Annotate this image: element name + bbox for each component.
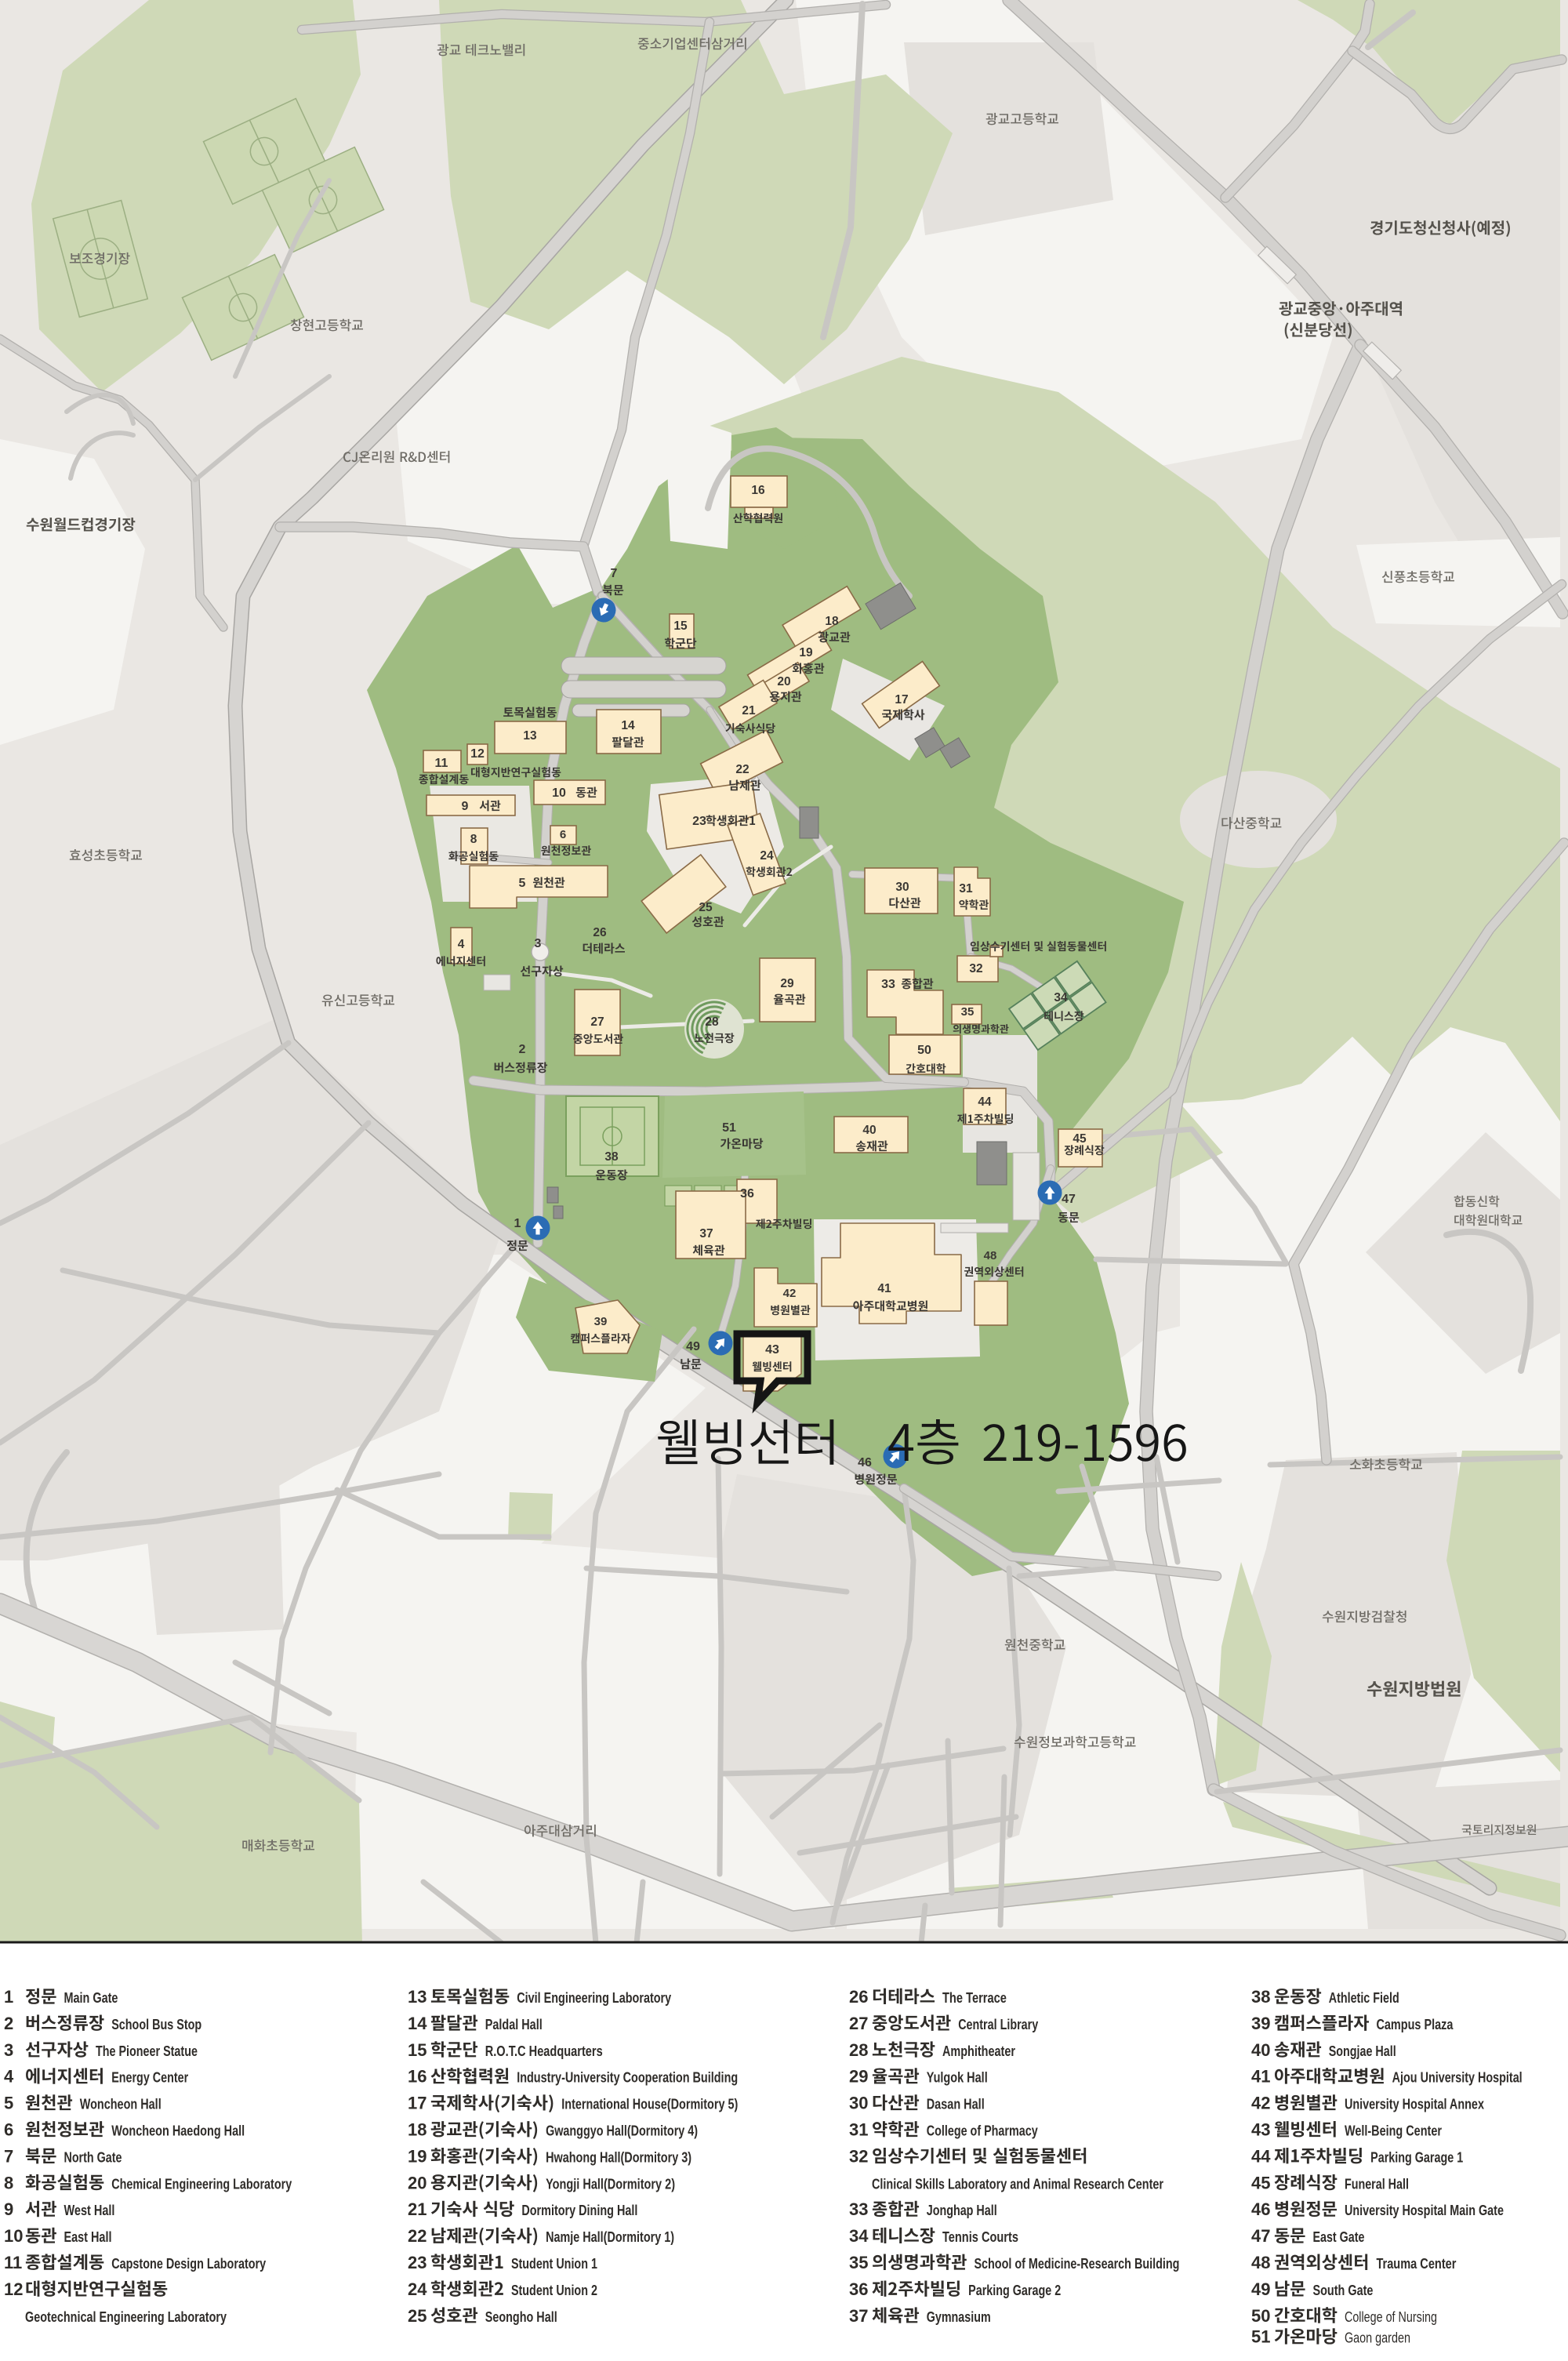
svg-text:West Hall: West Hall: [64, 2203, 114, 2218]
svg-text:The Terrace: The Terrace: [942, 1990, 1007, 2006]
svg-text:9: 9: [4, 2199, 13, 2219]
svg-text:21: 21: [408, 2199, 426, 2219]
svg-text:19: 19: [408, 2146, 426, 2166]
svg-text:31: 31: [849, 2120, 868, 2140]
svg-text:2: 2: [519, 1043, 526, 1056]
svg-text:34: 34: [1054, 991, 1068, 1004]
svg-text:23: 23: [692, 815, 706, 828]
svg-text:22: 22: [735, 763, 749, 776]
svg-text:12: 12: [470, 747, 485, 761]
svg-text:49: 49: [1251, 2279, 1270, 2299]
svg-text:18: 18: [408, 2120, 426, 2140]
svg-text:39: 39: [594, 1315, 608, 1328]
svg-text:49: 49: [686, 1340, 700, 1353]
svg-text:36: 36: [740, 1187, 754, 1200]
svg-text:8: 8: [470, 833, 477, 846]
svg-text:11: 11: [4, 2253, 22, 2272]
svg-text:14: 14: [621, 719, 635, 732]
svg-text:Woncheon Hall: Woncheon Hall: [80, 2097, 162, 2112]
svg-text:46: 46: [858, 1456, 872, 1469]
svg-text:43: 43: [1251, 2120, 1270, 2140]
svg-text:University Hospital Main Gate: University Hospital Main Gate: [1345, 2203, 1504, 2218]
svg-text:Dasan Hall: Dasan Hall: [927, 2097, 985, 2112]
svg-text:Main Gate: Main Gate: [64, 1990, 118, 2006]
svg-text:Dormitory Dining Hall: Dormitory Dining Hall: [521, 2203, 637, 2218]
svg-text:51: 51: [722, 1121, 736, 1135]
svg-text:13: 13: [408, 1987, 426, 2007]
svg-text:11: 11: [435, 757, 448, 770]
svg-text:Parking Garage 1: Parking Garage 1: [1370, 2149, 1463, 2165]
svg-text:9: 9: [462, 800, 469, 813]
svg-text:23: 23: [408, 2253, 426, 2272]
svg-text:Gaon garden: Gaon garden: [1345, 2330, 1410, 2346]
svg-text:47: 47: [1062, 1193, 1076, 1206]
svg-text:Athletic Field: Athletic Field: [1329, 1990, 1399, 2006]
svg-text:30: 30: [849, 2094, 868, 2113]
svg-text:33: 33: [849, 2199, 868, 2219]
svg-text:32: 32: [969, 962, 982, 975]
svg-text:5: 5: [4, 2094, 13, 2113]
svg-text:28: 28: [705, 1015, 719, 1029]
svg-text:1: 1: [4, 1987, 13, 2007]
svg-text:39: 39: [1251, 2014, 1270, 2033]
svg-text:24: 24: [408, 2279, 427, 2299]
svg-text:Amphitheater: Amphitheater: [942, 2043, 1015, 2059]
svg-text:38: 38: [1251, 1987, 1270, 2007]
svg-text:41: 41: [877, 1282, 891, 1295]
svg-text:Tennis Courts: Tennis Courts: [942, 2229, 1018, 2245]
svg-text:18: 18: [825, 615, 839, 628]
svg-text:10: 10: [552, 786, 566, 800]
svg-text:40: 40: [1251, 2040, 1270, 2060]
svg-text:32: 32: [849, 2146, 868, 2166]
svg-text:1: 1: [514, 1217, 521, 1230]
svg-text:Yulgok Hall: Yulgok Hall: [927, 2070, 988, 2086]
svg-text:37: 37: [699, 1227, 713, 1240]
svg-text:Ajou University Hospital: Ajou University Hospital: [1392, 2070, 1523, 2086]
svg-text:35: 35: [849, 2253, 868, 2272]
svg-text:17: 17: [895, 693, 908, 706]
svg-text:29: 29: [780, 977, 794, 990]
svg-text:30: 30: [895, 881, 909, 894]
svg-text:Campus Plaza: Campus Plaza: [1376, 2017, 1454, 2032]
svg-text:Songjae Hall: Songjae Hall: [1329, 2043, 1396, 2059]
svg-text:42: 42: [1251, 2094, 1270, 2113]
svg-text:The Pioneer Statue: The Pioneer Statue: [96, 2043, 198, 2059]
svg-text:Geotechnical Engineering Labor: Geotechnical Engineering Laboratory: [25, 2309, 227, 2325]
svg-text:45: 45: [1073, 1132, 1087, 1146]
svg-text:R.O.T.C Headquarters: R.O.T.C Headquarters: [485, 2043, 603, 2059]
svg-text:Trauma Center: Trauma Center: [1376, 2256, 1456, 2272]
svg-text:Woncheon Haedong Hall: Woncheon Haedong Hall: [111, 2123, 245, 2139]
svg-text:21: 21: [742, 704, 756, 717]
svg-text:Clinical Skills Laboratory and: Clinical Skills Laboratory and Animal Re…: [872, 2176, 1163, 2192]
svg-text:27: 27: [590, 1015, 604, 1029]
svg-text:Namje Hall(Dormitory 1): Namje Hall(Dormitory 1): [546, 2229, 674, 2245]
svg-text:26: 26: [593, 926, 607, 939]
svg-text:38: 38: [604, 1150, 619, 1164]
svg-text:Yongji Hall(Dormitory 2): Yongji Hall(Dormitory 2): [546, 2176, 675, 2192]
svg-text:16: 16: [751, 484, 765, 497]
svg-text:4: 4: [458, 938, 465, 951]
svg-text:Gwanggyo Hall(Dormitory 4): Gwanggyo Hall(Dormitory 4): [546, 2123, 698, 2139]
svg-text:4: 4: [4, 2067, 14, 2087]
svg-text:Seongho Hall: Seongho Hall: [485, 2309, 557, 2325]
svg-text:Jonghap Hall: Jonghap Hall: [927, 2203, 997, 2218]
svg-text:Hwahong Hall(Dormitory 3): Hwahong Hall(Dormitory 3): [546, 2149, 691, 2165]
svg-text:East Hall: East Hall: [64, 2229, 111, 2245]
svg-text:20: 20: [408, 2173, 426, 2192]
svg-text:46: 46: [1251, 2199, 1270, 2219]
svg-text:Student Union 2: Student Union 2: [511, 2283, 597, 2298]
svg-text:20: 20: [777, 675, 790, 688]
svg-text:36: 36: [849, 2279, 868, 2299]
svg-text:Chemical Engineering Laborator: Chemical Engineering Laboratory: [111, 2176, 292, 2192]
svg-text:2: 2: [4, 2014, 13, 2033]
svg-text:19: 19: [799, 646, 813, 659]
svg-text:North Gate: North Gate: [64, 2149, 122, 2165]
svg-text:13: 13: [523, 729, 537, 743]
svg-text:41: 41: [1251, 2067, 1270, 2087]
svg-text:7: 7: [4, 2146, 13, 2166]
svg-text:12: 12: [4, 2279, 23, 2299]
svg-text:44: 44: [1251, 2146, 1271, 2166]
svg-text:15: 15: [408, 2040, 426, 2060]
svg-text:7: 7: [611, 567, 618, 580]
svg-text:6: 6: [560, 828, 566, 841]
svg-text:Central Library: Central Library: [958, 2017, 1038, 2032]
svg-text:Well-Being Center: Well-Being Center: [1345, 2123, 1442, 2139]
svg-text:Parking Garage 2: Parking Garage 2: [968, 2283, 1061, 2298]
svg-text:48: 48: [984, 1249, 997, 1262]
svg-text:28: 28: [849, 2040, 868, 2060]
svg-text:45: 45: [1251, 2173, 1270, 2192]
svg-text:College of Nursing: College of Nursing: [1345, 2309, 1437, 2325]
svg-text:10: 10: [4, 2226, 23, 2246]
svg-text:School Bus Stop: School Bus Stop: [111, 2017, 201, 2032]
svg-text:16: 16: [408, 2067, 426, 2087]
svg-text:Gymnasium: Gymnasium: [927, 2309, 991, 2325]
svg-text:School of Medicine-Research Bu: School of Medicine-Research Building: [974, 2256, 1179, 2272]
svg-text:Student Union 1: Student Union 1: [511, 2256, 597, 2272]
svg-text:40: 40: [862, 1124, 876, 1137]
svg-text:25: 25: [408, 2306, 426, 2326]
svg-text:24: 24: [760, 849, 774, 863]
svg-text:6: 6: [4, 2120, 13, 2140]
svg-text:3: 3: [535, 937, 542, 950]
svg-text:51: 51: [1251, 2327, 1270, 2347]
svg-text:33: 33: [881, 978, 895, 991]
svg-text:Industry-University Cooperatio: Industry-University Cooperation Building: [517, 2070, 738, 2086]
svg-text:International House(Dormitory: International House(Dormitory 5): [561, 2097, 738, 2112]
svg-text:48: 48: [1251, 2253, 1270, 2272]
svg-text:Civil Engineering Laboratory: Civil Engineering Laboratory: [517, 1990, 671, 2006]
svg-text:50: 50: [1251, 2306, 1270, 2326]
svg-text:34: 34: [849, 2226, 869, 2246]
svg-text:East Gate: East Gate: [1312, 2229, 1364, 2245]
svg-text:14: 14: [408, 2014, 427, 2033]
svg-text:26: 26: [849, 1987, 868, 2007]
svg-text:25: 25: [699, 901, 713, 914]
svg-text:44: 44: [978, 1095, 992, 1109]
svg-text:3: 3: [4, 2040, 13, 2060]
svg-text:50: 50: [917, 1044, 931, 1057]
svg-text:42: 42: [783, 1287, 797, 1300]
svg-text:Funeral Hall: Funeral Hall: [1345, 2176, 1409, 2192]
svg-text:University Hospital Annex: University Hospital Annex: [1345, 2097, 1484, 2112]
svg-text:22: 22: [408, 2226, 426, 2246]
svg-text:Energy Center: Energy Center: [111, 2070, 188, 2086]
svg-text:29: 29: [849, 2067, 868, 2087]
svg-text:17: 17: [408, 2094, 426, 2113]
svg-text:35: 35: [961, 1005, 975, 1019]
svg-text:47: 47: [1251, 2226, 1270, 2246]
svg-text:8: 8: [4, 2173, 13, 2192]
svg-text:37: 37: [849, 2306, 868, 2326]
svg-text:South Gate: South Gate: [1312, 2283, 1373, 2298]
svg-text:27: 27: [849, 2014, 868, 2033]
svg-text:College of Pharmacy: College of Pharmacy: [927, 2123, 1038, 2139]
svg-text:15: 15: [673, 619, 688, 633]
svg-text:31: 31: [959, 882, 973, 895]
svg-text:Paldal Hall: Paldal Hall: [485, 2017, 543, 2032]
svg-text:Capstone Design Laboratory: Capstone Design Laboratory: [111, 2256, 266, 2272]
svg-text:5: 5: [519, 877, 526, 890]
svg-text:43: 43: [765, 1343, 779, 1357]
